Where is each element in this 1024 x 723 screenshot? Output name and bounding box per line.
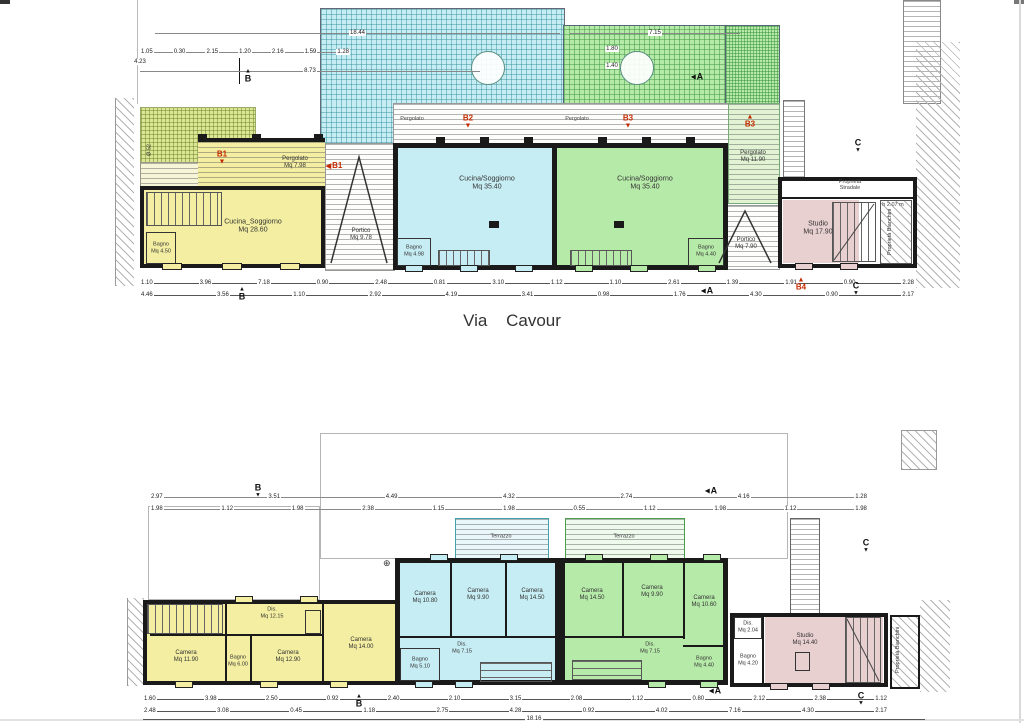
- room-label: Camera Mq 14.50: [519, 588, 544, 602]
- dim-label: 2.15: [205, 49, 219, 55]
- dim-label: 1.40: [605, 63, 619, 69]
- room-label: Dis. Mq 7.15: [452, 641, 472, 654]
- pergola-label: Pergolato Mq 7.98: [282, 156, 308, 170]
- pergola-label: Pergolato Mq 11.90: [740, 150, 766, 164]
- portico-area: Mq 9.78: [350, 235, 372, 241]
- dim-label: 4.30: [749, 292, 763, 298]
- room-name: Camera: [348, 637, 373, 644]
- portico-name: Portico: [735, 237, 757, 244]
- height-note: h 2.07 m: [882, 202, 903, 208]
- window-symbol: [415, 681, 433, 688]
- dim-label: 0.81: [433, 280, 447, 286]
- unit-marker-b1: B1 ▼: [217, 151, 227, 166]
- pillar: [314, 134, 323, 142]
- dim-label: 0.30: [173, 49, 187, 55]
- room-name: Cucina/Soggiorno: [617, 176, 673, 184]
- room-area: Mq 4.98: [404, 251, 424, 257]
- dim-label: 1.12: [220, 506, 234, 512]
- room-area: Mq 10.60: [691, 602, 716, 608]
- terrazzo-name: Terrazzo: [613, 534, 634, 541]
- dim-label: 2.48: [143, 708, 157, 714]
- section-letter: B: [239, 292, 246, 302]
- stairs-diagonal: [845, 617, 881, 683]
- architectural-drawing: 1.80 1.40 Pergolato Pergolato Pergolato …: [0, 0, 1024, 723]
- room-area: Mq 6.00: [228, 661, 248, 667]
- section-letter: C: [858, 691, 865, 701]
- stairs: [146, 192, 222, 226]
- unit-marker-label: B1: [332, 162, 342, 170]
- dim-label: 1.98: [291, 506, 305, 512]
- room-label: Camera Mq 9.90: [641, 585, 663, 599]
- room-name: Camera: [641, 585, 663, 592]
- room-name: Studio: [792, 633, 817, 640]
- fixture-box: [795, 652, 810, 671]
- portico-label: Portico Mq 9.78: [350, 228, 372, 242]
- window-symbol: [330, 681, 348, 688]
- down-arrow-icon: ▼: [853, 291, 860, 297]
- terrazzo-label: Terrazzo: [613, 534, 634, 541]
- section-letter: B: [245, 74, 252, 84]
- section-marker-c-bottom: C ▼: [853, 282, 860, 297]
- hatch-area-right: [916, 42, 960, 288]
- room-name: Bagno: [228, 654, 248, 661]
- room-name: Bagno: [404, 244, 424, 251]
- dim-label: 1.98: [150, 506, 164, 512]
- dim-label: 0.80: [691, 696, 705, 702]
- dim-label: 2.10: [448, 696, 462, 702]
- dim-label: 2.48: [374, 280, 388, 286]
- room-name: Dis.: [738, 620, 758, 627]
- dim-label: 1.28: [854, 494, 868, 500]
- roof-outline: [148, 506, 320, 600]
- dim-label: 4.46: [140, 292, 154, 298]
- scan-edge: [1019, 0, 1021, 723]
- section-marker-c-f1-bottom: C ▼: [858, 692, 865, 707]
- window-symbol: [280, 263, 300, 270]
- unit-marker-b1-left: ◀ B1: [326, 162, 343, 170]
- dim-label: 0.55: [573, 506, 587, 512]
- section-marker-b-bottom: ▲ B: [239, 287, 246, 302]
- window-symbol: [795, 263, 813, 270]
- unit-marker-b3-pergola: ▲ B3: [745, 114, 755, 129]
- window-symbol: [460, 265, 478, 272]
- dim-label: 2.17: [901, 292, 915, 298]
- room-name: Camera: [467, 588, 489, 595]
- room-name: Bagno: [738, 653, 758, 660]
- window-symbol: [430, 554, 448, 561]
- window-symbol: [585, 554, 603, 561]
- stairs-diagonal: [832, 202, 876, 262]
- property-note-line: Bianchini: [887, 209, 893, 231]
- room-area: Mq 14.00: [348, 644, 373, 650]
- left-arrow-icon: ◀: [701, 288, 706, 294]
- partition-wall: [322, 604, 324, 683]
- pergola-label: Pergolato: [400, 116, 424, 122]
- exterior-steps-strip: [783, 100, 805, 178]
- section-marker-b-f1: B ▼: [255, 484, 262, 499]
- window-symbol: [703, 554, 721, 561]
- dim-label: 1.20: [238, 49, 252, 55]
- stairs: [572, 660, 642, 680]
- room-label: Bagno Mq 4.20: [738, 653, 758, 666]
- dim-label: 2.17: [874, 708, 888, 714]
- dim-label: 7.18: [257, 280, 271, 286]
- room-label: Dis. Mq 7.15: [640, 641, 660, 654]
- dim-label: 1.98: [502, 506, 516, 512]
- dim-label: 2.28: [901, 280, 915, 286]
- dim-label: 1.12: [550, 280, 564, 286]
- property-note: Proprietà Bianchini: [895, 624, 902, 676]
- section-marker-c-f1: C ▼: [863, 539, 870, 554]
- dim-label: 1.12: [784, 506, 798, 512]
- dim-label: 1.39: [726, 280, 740, 286]
- down-arrow-icon: ▼: [217, 159, 227, 166]
- section-letter: B: [356, 699, 363, 709]
- dim-label: 4.32: [502, 494, 516, 500]
- dimension-row: 1.981.121.982.381.151.980.551.121.981.12…: [150, 504, 868, 513]
- room-name: Camera: [519, 588, 544, 595]
- partition-wall: [250, 634, 252, 683]
- room-label: Dis. Mq 12.15: [261, 606, 284, 619]
- window-symbol: [575, 265, 593, 272]
- dim-label: 7.15: [648, 30, 662, 36]
- dim-label: 1.12: [643, 506, 657, 512]
- hatch-area: [901, 430, 937, 470]
- room-area: Mq 7.15: [640, 648, 660, 654]
- diameter-note: Ø 52: [146, 144, 153, 156]
- exterior-stair-strip: [790, 518, 820, 616]
- dim-label: 0.90: [825, 292, 839, 298]
- down-arrow-icon: ▼: [858, 701, 865, 707]
- window-symbol: [630, 265, 648, 272]
- dim-label: 3.98: [204, 696, 218, 702]
- dim-label: 3.15: [509, 696, 523, 702]
- dim-label: 0.92: [582, 708, 596, 714]
- room-name: Camera: [412, 591, 437, 598]
- dim-label: 2.74: [620, 494, 634, 500]
- room-area: Mq 11.90: [174, 657, 199, 663]
- room-area: Mq 14.50: [579, 595, 604, 601]
- room-label: Bagno Mq 4.98: [404, 244, 424, 257]
- survey-point-icon: ⊕: [383, 558, 391, 569]
- dim-label: 2.92: [368, 292, 382, 298]
- pillar: [198, 134, 207, 142]
- dim-label: 2.08: [570, 696, 584, 702]
- property-note: Proprietà Bianchini: [887, 208, 894, 256]
- room-label: Cucina/Soggiorno Mq 35.40: [617, 176, 673, 193]
- pergola-area: Mq 7.98: [284, 163, 306, 169]
- pergola-area: Mq 11.90: [741, 157, 766, 163]
- room-name: Cucina/Soggiorno: [459, 176, 515, 184]
- down-arrow-icon: ▼: [255, 493, 262, 499]
- room-area: Mq 4.40: [694, 662, 714, 668]
- dim-label: 18.16: [525, 716, 542, 722]
- dim-label: 3.96: [199, 280, 213, 286]
- hatch-area-left: [127, 598, 144, 686]
- dim-label: 4.16: [737, 494, 751, 500]
- room-label: Camera Mq 10.80: [412, 591, 437, 605]
- partition-wall: [400, 636, 555, 638]
- pillar: [480, 137, 489, 144]
- dim-label: 1.98: [713, 506, 727, 512]
- dim-label: 4.19: [445, 292, 459, 298]
- left-arrow-icon: ◀: [709, 688, 714, 694]
- section-letter: A: [697, 73, 704, 82]
- room-name: Dis.: [640, 641, 660, 648]
- closet-box: [305, 610, 321, 634]
- partition-wall: [683, 645, 725, 647]
- room-name: Studio: [803, 221, 832, 229]
- terrace-grid-cyan-lower: [320, 104, 395, 144]
- tree-circle: [620, 51, 654, 85]
- window-symbol: [175, 681, 193, 688]
- dim-label: 2.50: [265, 696, 279, 702]
- down-arrow-icon: ▼: [863, 548, 870, 554]
- dim-label: 2.38: [361, 506, 375, 512]
- dim-label: 4.30: [801, 708, 815, 714]
- pergola-name: Pergolato: [740, 150, 766, 157]
- pillar: [252, 134, 261, 142]
- stairs: [480, 662, 552, 682]
- dim-label: 4.49: [385, 494, 399, 500]
- dim-label: 0.90: [316, 280, 330, 286]
- room-label: Camera Mq 11.90: [174, 650, 199, 664]
- room-name: Bagno: [151, 241, 171, 248]
- dim-label: 4.23: [133, 59, 147, 65]
- dim-label: 0.98: [597, 292, 611, 298]
- dim-label: 0.92: [326, 696, 340, 702]
- unit-marker-label: B2: [463, 114, 473, 123]
- room-name: Bagno: [696, 244, 716, 251]
- room-label: Bagno Mq 4.50: [151, 241, 171, 254]
- section-letter: A: [711, 487, 718, 496]
- unit-marker-b4: ▲ B4: [796, 277, 806, 292]
- window-symbol: [840, 263, 858, 270]
- section-marker-a-f1-bottom: ◀ A: [709, 687, 721, 696]
- construction-line: [137, 0, 138, 104]
- pergola-label: Pergolato: [565, 116, 589, 122]
- neighbour-property-strip: [880, 200, 912, 264]
- partition-wall: [782, 197, 913, 199]
- unit-marker-label: B1: [217, 150, 227, 159]
- left-arrow-icon: ◀: [326, 163, 331, 170]
- room-area: Mq 35.40: [472, 184, 501, 191]
- section-letter: C: [863, 538, 870, 548]
- dim-label: 4.28: [509, 708, 523, 714]
- room-area: Mq 5.10: [410, 663, 430, 669]
- room-label: Dis. Mq 2.04: [738, 620, 758, 633]
- section-marker-a-f1: ◀ A: [705, 487, 717, 496]
- left-arrow-icon: ◀: [691, 74, 696, 80]
- dim-label: 1.10: [292, 292, 306, 298]
- section-marker-b: ▲ B: [245, 69, 252, 84]
- window-symbol: [405, 265, 423, 272]
- dim-label: 3.41: [521, 292, 535, 298]
- room-area: Mq 17.90: [803, 229, 832, 236]
- dim-label: 8.73: [303, 68, 317, 74]
- dim-label: 0.45: [289, 708, 303, 714]
- room-label: Studio Mq 14.40: [792, 633, 817, 647]
- window-symbol: [162, 263, 182, 270]
- dim-label: 1.18: [362, 708, 376, 714]
- portico-name: Portico: [350, 228, 372, 235]
- pillar: [598, 137, 607, 144]
- dim-label: 1.15: [432, 506, 446, 512]
- room-label: Bagno Mq 5.10: [410, 656, 430, 669]
- section-letter: A: [707, 287, 714, 296]
- dim-label: 3.10: [491, 280, 505, 286]
- room-label: Bagno Mq 6.00: [228, 654, 248, 667]
- pillar: [614, 221, 624, 228]
- room-name: Dis.: [452, 641, 472, 648]
- room-name: Camera: [275, 650, 300, 657]
- pillar: [436, 137, 445, 144]
- dim-label: 1.12: [631, 696, 645, 702]
- dim-label: 1.28: [336, 49, 350, 55]
- hatch-area-left: [115, 98, 134, 286]
- down-arrow-icon: ▼: [463, 123, 473, 130]
- room-area: Mq 2.04: [738, 627, 758, 633]
- pergola-name: Pergolato: [282, 156, 308, 163]
- partition-wall: [622, 560, 624, 638]
- hatch-area-right: [920, 600, 950, 692]
- section-marker-a-bottom: ◀ A: [701, 287, 713, 296]
- dimension-row: 1.050.302.151.202.161.591.28: [140, 47, 350, 56]
- unit-marker-b3: B3 ▼: [623, 115, 633, 130]
- dim-label: 2.16: [271, 49, 285, 55]
- room-area: Mq 9.90: [641, 592, 663, 598]
- dimension-row: 8.73: [140, 66, 480, 75]
- section-letter: B: [255, 483, 262, 493]
- dim-label: 1.10: [609, 280, 623, 286]
- dimension-row: 7.15: [570, 28, 740, 37]
- room-name: Bagno: [410, 656, 430, 663]
- room-area: Mq 12.90: [275, 657, 300, 663]
- room-area: Mq 12.15: [261, 613, 284, 619]
- room-area: Mq 10.80: [412, 598, 437, 604]
- room-name: Camera: [691, 595, 716, 602]
- dim-label: 1.05: [140, 49, 154, 55]
- dim-label: 1.60: [143, 696, 157, 702]
- room-area: Mq 14.40: [792, 640, 817, 646]
- section-marker-b-f1-bottom: ▲ B: [356, 694, 363, 709]
- dim-label: 18.44: [349, 30, 366, 36]
- dimension-row: 1.603.982.500.922.402.103.152.081.120.80…: [143, 694, 888, 703]
- property-note-line: Proprietà: [887, 233, 893, 255]
- room-label: Camera Mq 12.90: [275, 650, 300, 664]
- dimension-row-total: 18.16: [143, 714, 925, 723]
- dim-label: 2.61: [667, 280, 681, 286]
- partition-wall: [505, 560, 507, 638]
- room-name: Bagno: [694, 655, 714, 662]
- stairs: [147, 604, 223, 634]
- property-note-line: Proprietà: [895, 651, 901, 673]
- dim-label: 1.98: [854, 506, 868, 512]
- dim-label: 3.51: [267, 494, 281, 500]
- dim-label: 1.59: [304, 49, 318, 55]
- room-area: Mq 4.40: [696, 251, 716, 257]
- property-note-line: Bianchini: [895, 627, 901, 649]
- room-name: Camera: [579, 588, 604, 595]
- window-symbol: [235, 596, 253, 603]
- pillar: [642, 137, 651, 144]
- window-symbol: [515, 265, 533, 272]
- partition-wall: [565, 636, 685, 638]
- room-area: Mq 4.20: [738, 660, 758, 666]
- room-area: Mq 4.50: [151, 248, 171, 254]
- pillar: [524, 137, 533, 144]
- window-symbol: [770, 683, 788, 690]
- dim-label: 2.97: [150, 494, 164, 500]
- room-area: Mq 9.90: [467, 595, 489, 601]
- room-label: Camera Mq 14.50: [579, 588, 604, 602]
- window-symbol: [650, 554, 668, 561]
- dim-label: 7.16: [728, 708, 742, 714]
- window-symbol: [455, 681, 473, 688]
- room-name: Dis.: [261, 606, 284, 613]
- partition-wall: [450, 560, 452, 638]
- window-symbol: [300, 596, 318, 603]
- dim-label: 1.76: [673, 292, 687, 298]
- steps-b1: [140, 162, 200, 189]
- room-label: Camera Mq 9.90: [467, 588, 489, 602]
- partition-wall: [150, 634, 322, 636]
- room-name: Cucina_Soggiorno: [224, 219, 282, 227]
- dim-label: 2.12: [752, 696, 766, 702]
- scan-corner-mark: [0, 0, 10, 4]
- section-marker-c: C ▼: [855, 139, 862, 154]
- room-name: Camera: [174, 650, 199, 657]
- pillar: [489, 221, 499, 228]
- dim-label: 2.75: [436, 708, 450, 714]
- room-label: Studio Mq 17.90: [803, 221, 832, 238]
- terrace-grid-green-fine: [725, 25, 780, 106]
- portico-area: Mq 7.90: [735, 244, 757, 250]
- property-note-top: Proprietà Stradale: [839, 179, 861, 191]
- dim-label: 3.08: [216, 708, 230, 714]
- unit-marker-label: B3: [623, 114, 633, 123]
- pillar: [686, 137, 695, 144]
- section-marker-a: ◀ A: [691, 73, 703, 82]
- room-label: Cucina_Soggiorno Mq 28.60: [224, 219, 282, 236]
- section-letter: C: [855, 138, 862, 148]
- room-label: Camera Mq 10.60: [691, 595, 716, 609]
- room-label: Camera Mq 14.00: [348, 637, 373, 651]
- stairs: [570, 250, 632, 266]
- window-symbol: [648, 681, 666, 688]
- stairs: [438, 250, 490, 266]
- unit-marker-label: B3: [745, 120, 755, 129]
- terrazzo-name: Terrazzo: [490, 534, 511, 541]
- partition-wall: [762, 617, 764, 683]
- window-symbol: [260, 681, 278, 688]
- partition-wall: [225, 604, 227, 683]
- dim-label: 2.38: [813, 696, 827, 702]
- down-arrow-icon: ▼: [855, 148, 862, 154]
- window-symbol: [500, 554, 518, 561]
- down-arrow-icon: ▼: [623, 123, 633, 130]
- dim-label: 1.12: [874, 696, 888, 702]
- portico-label: Portico Mq 7.90: [735, 237, 757, 251]
- room-area: Mq 35.40: [630, 184, 659, 191]
- room-label: Bagno Mq 4.40: [694, 655, 714, 668]
- room-area: Mq 14.50: [519, 595, 544, 601]
- room-area: Mq 28.60: [238, 227, 267, 234]
- dimension-row: 18.44: [155, 28, 560, 37]
- terrazzo-label: Terrazzo: [490, 534, 511, 541]
- room-label: Bagno Mq 4.40: [696, 244, 716, 257]
- street-label: Via Cavour: [463, 311, 561, 331]
